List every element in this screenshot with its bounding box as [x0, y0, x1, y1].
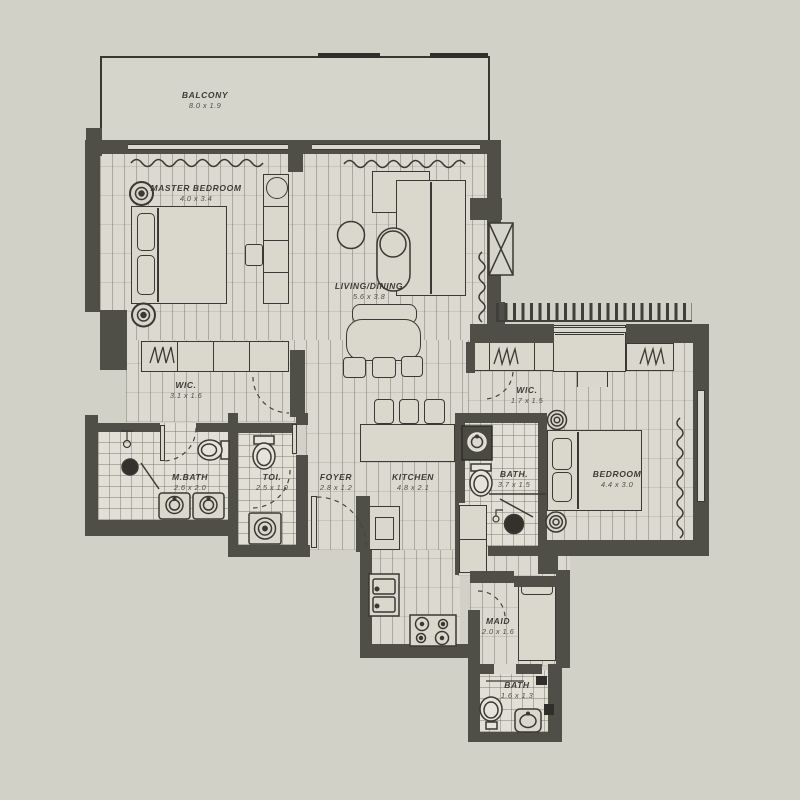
wall-bath2-maid-corner [538, 546, 558, 574]
wall-toi-bottom [228, 545, 310, 557]
room-name: BALCONY [182, 90, 228, 100]
wall-bedroom2-south [546, 540, 709, 556]
master-bed-pillow [137, 255, 155, 295]
wardrobe-divider [489, 343, 490, 370]
wall-maid-top-left [470, 571, 514, 583]
room-label-living-dining: LIVING/DINING 5.6 x 3.8 [294, 281, 444, 302]
bar-stool [374, 399, 394, 424]
wardrobe-divider [249, 342, 250, 371]
room-dims: 1.7 x 1.5 [452, 396, 602, 406]
wall-mbath-left [85, 415, 98, 536]
entry-door-leaf [311, 496, 317, 548]
bedroom2-pillow [552, 438, 572, 470]
dining-chair [372, 357, 396, 378]
wall-mbath-bottom [85, 520, 235, 536]
wardrobe-divider [534, 343, 535, 370]
wall-kitchen-left [360, 550, 372, 646]
wardrobe-divider [264, 206, 288, 207]
bar-stool [399, 399, 419, 424]
wardrobe-divider [264, 272, 288, 273]
maidbath-fixture [544, 704, 554, 715]
wall-maid-top-right [514, 576, 558, 587]
room-label-wic-master: WIC. 3.1 x 1.6 [111, 380, 261, 401]
wall-mbath-top-left [98, 423, 160, 432]
oven-inner [375, 517, 394, 540]
room-dims: 1.6 x 1.3 [442, 691, 592, 701]
room-label-master-bedroom: MASTER BEDROOM 4.0 x 3.4 [121, 183, 271, 204]
bar-stool [424, 399, 445, 424]
room-label-balcony: BALCONY 8.0 x 1.9 [130, 90, 280, 111]
wall-maidbath-bottom [468, 732, 562, 742]
bedroom2-right-window [697, 390, 705, 502]
dining-chair [343, 357, 366, 378]
wall-maidbath-left [468, 664, 480, 742]
bedroom2-louvre-window [496, 303, 692, 322]
wall-left-jog [100, 310, 127, 370]
sofa-seat-line [430, 182, 432, 294]
wall-bath2-left-thin [455, 503, 459, 575]
floor-plan: BALCONY 8.0 x 1.9 MASTER BEDROOM 4.0 x 3… [0, 0, 800, 800]
wall-toi-right-lower [296, 455, 308, 545]
wall-window-stub [288, 140, 303, 172]
kitchen-island [360, 424, 455, 462]
room-label-maid: MAID 2.0 x 1.6 [423, 616, 573, 637]
bedroom2-mid-window [554, 327, 626, 333]
bedroom2-wardrobe-right [626, 343, 674, 371]
living-window [312, 144, 480, 150]
room-label-maid-bath: BATH 1.6 x 1.3 [442, 680, 592, 701]
maidbath-door-gap [494, 664, 516, 674]
room-dims: 4.0 x 3.4 [121, 194, 271, 204]
room-name: BEDROOM [593, 469, 642, 479]
wall-shaft-block [470, 198, 502, 220]
bedroom2-wardrobe-left [472, 342, 554, 371]
room-dims: 5.6 x 3.8 [294, 292, 444, 302]
dining-chair [401, 356, 423, 377]
room-dims: 4.4 x 3.0 [542, 480, 692, 490]
wall-bedroom2-north-right [626, 324, 693, 343]
wall-entry-stub [356, 496, 370, 552]
wall-bath2-top [455, 413, 545, 423]
room-label-bedroom: BEDROOM 4.4 x 3.0 [542, 469, 692, 490]
wall-kitchen-bottom [360, 644, 472, 658]
room-dims: 3.1 x 1.6 [111, 391, 261, 401]
wic-master-wardrobe [141, 341, 289, 372]
wall-right-living [487, 140, 501, 326]
master-bed-headboard-line [157, 208, 159, 302]
wall-bedroom2-north-left [470, 324, 554, 343]
room-name: WIC. [516, 385, 537, 395]
dining-table [346, 319, 421, 361]
room-name: MAID [486, 616, 510, 626]
room-name: WIC. [175, 380, 196, 390]
room-dims: 2.0 x 1.6 [423, 627, 573, 637]
master-bed-pillow [137, 213, 155, 251]
toi-door-leaf [292, 424, 297, 454]
mbath-door-leaf [160, 425, 165, 461]
balcony-rail-segment [430, 53, 488, 58]
room-name: BATH [504, 680, 529, 690]
room-dims: 8.0 x 1.9 [130, 101, 280, 111]
room-name: BATH. [500, 469, 528, 479]
wall-maidbath-right [548, 664, 562, 742]
room-name: MASTER BEDROOM [150, 183, 241, 193]
master-window [128, 144, 288, 150]
room-name: KITCHEN [392, 472, 434, 482]
bay-line [555, 334, 624, 335]
balcony-rail-segment [318, 53, 380, 58]
tv-unit [245, 244, 263, 266]
cabinet-divider [460, 539, 486, 540]
wall-toi-top [238, 423, 296, 433]
wall-wardrobe-left-edge [466, 342, 475, 373]
wardrobe-divider [213, 342, 214, 371]
room-name: LIVING/DINING [335, 281, 403, 291]
wall-wic-living-divider [290, 350, 305, 417]
wall-left-upper [85, 140, 100, 312]
room-label-wic-bedroom: WIC. 1.7 x 1.5 [452, 385, 602, 406]
wardrobe-divider [177, 342, 178, 371]
wall-mbath-top-right [196, 423, 232, 432]
wardrobe-divider [264, 240, 288, 241]
